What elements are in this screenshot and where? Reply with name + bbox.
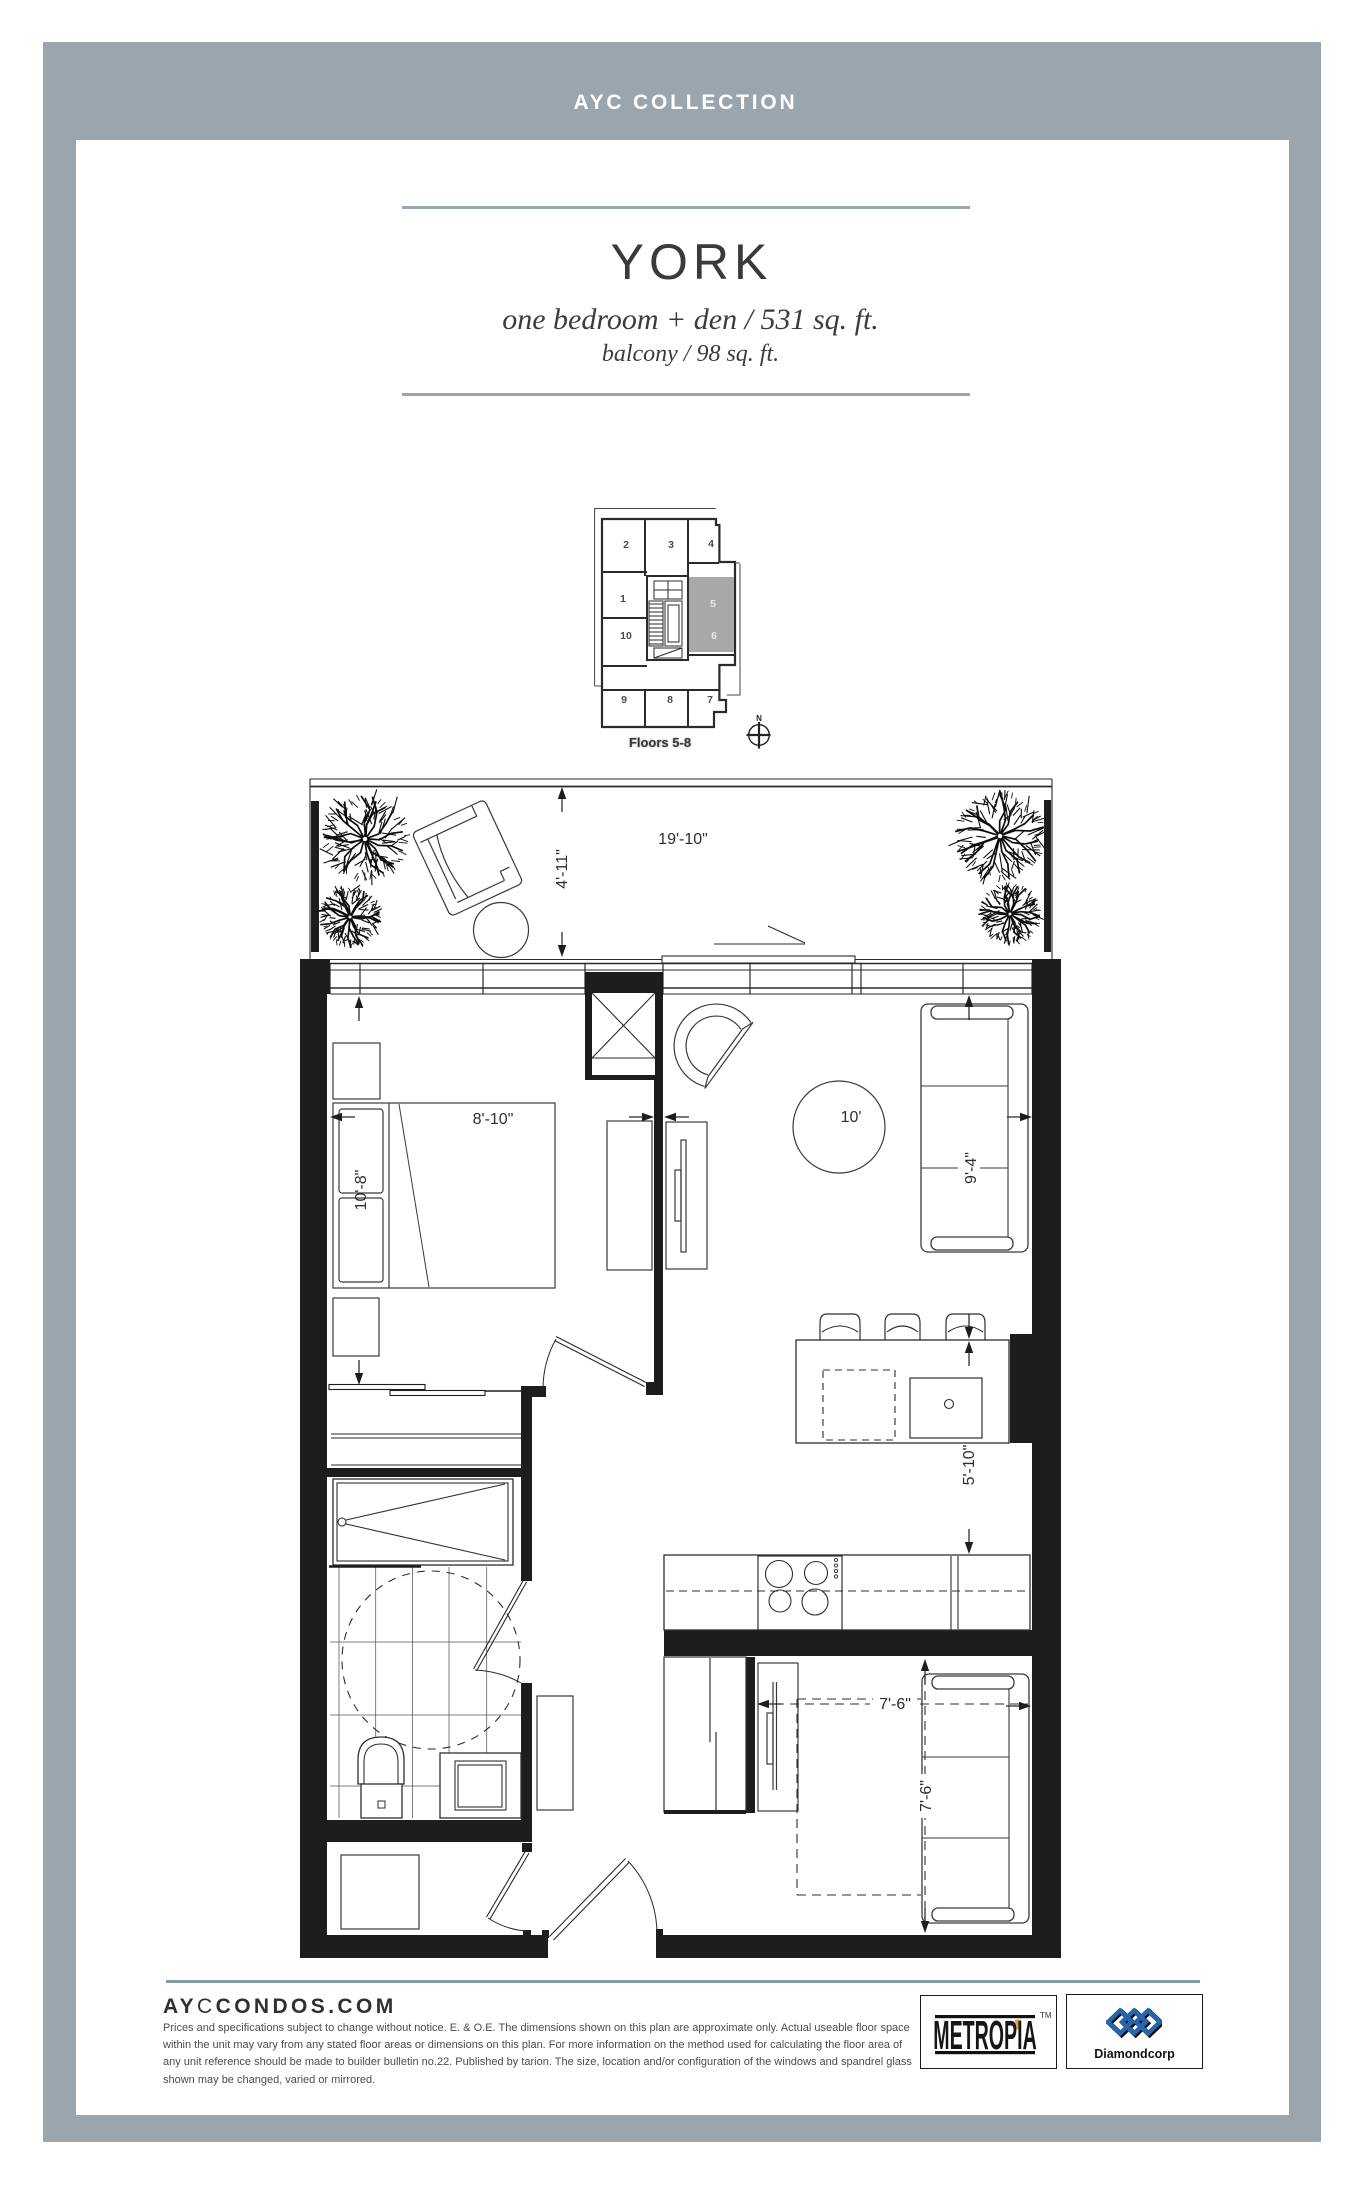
svg-text:19'-10": 19'-10" — [658, 831, 708, 848]
svg-text:Floors 5-8: Floors 5-8 — [629, 735, 691, 750]
svg-text:7: 7 — [707, 694, 713, 706]
svg-text:10': 10' — [841, 1109, 862, 1126]
svg-text:10'-8": 10'-8" — [353, 1170, 370, 1211]
svg-text:5: 5 — [710, 598, 716, 610]
svg-text:N: N — [756, 714, 762, 723]
svg-text:10: 10 — [620, 630, 632, 642]
svg-text:6: 6 — [711, 630, 717, 642]
svg-text:2: 2 — [623, 539, 629, 551]
svg-text:METROPIA: METROPIA — [933, 2012, 1037, 2058]
svg-text:3: 3 — [668, 539, 674, 551]
svg-text:4'-11": 4'-11" — [554, 849, 571, 889]
svg-text:7'-6": 7'-6" — [918, 1780, 935, 1812]
svg-text:9'-4": 9'-4" — [963, 1152, 980, 1184]
svg-text:1: 1 — [620, 593, 626, 605]
svg-text:7'-6": 7'-6" — [879, 1696, 911, 1713]
svg-text:8: 8 — [667, 694, 673, 706]
svg-text:8'-10": 8'-10" — [473, 1111, 514, 1128]
svg-text:TM: TM — [1040, 2011, 1052, 2020]
svg-text:9: 9 — [621, 694, 627, 706]
svg-text:4: 4 — [708, 538, 714, 550]
svg-text:5'-10": 5'-10" — [961, 1445, 978, 1486]
